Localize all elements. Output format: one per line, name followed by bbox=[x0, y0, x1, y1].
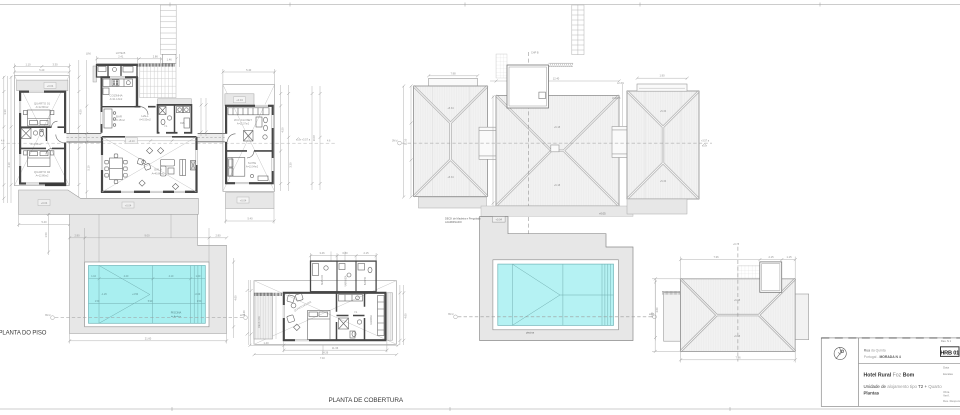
svg-text:11.36: 11.36 bbox=[332, 346, 339, 350]
svg-text:3.30: 3.30 bbox=[288, 162, 292, 168]
svg-text:4.10: 4.10 bbox=[7, 162, 11, 168]
svg-text:7.98: 7.98 bbox=[450, 71, 456, 75]
svg-text:3M d: 3M d bbox=[392, 140, 398, 143]
svg-text:4.49: 4.49 bbox=[242, 310, 246, 316]
svg-text:Hotel Rural Foz Bom: Hotel Rural Foz Bom bbox=[864, 372, 915, 378]
svg-text:+3.57 a: +3.57 a bbox=[302, 138, 311, 142]
svg-text:21.60: 21.60 bbox=[145, 336, 152, 340]
svg-text:1.50: 1.50 bbox=[44, 232, 48, 238]
svg-text:DECK de Madeira e Pergolado: DECK de Madeira e Pergolado bbox=[445, 217, 481, 221]
svg-text:3M d: 3M d bbox=[448, 313, 454, 316]
svg-text:1.10: 1.10 bbox=[25, 62, 31, 66]
svg-text:Des. N 1: Des. N 1 bbox=[941, 339, 952, 343]
svg-text:I.S.: I.S. bbox=[164, 126, 168, 128]
svg-text:+5.34: +5.34 bbox=[447, 176, 454, 179]
svg-text:3.30: 3.30 bbox=[3, 109, 7, 115]
svg-text:1.00: 1.00 bbox=[196, 275, 201, 278]
svg-text:11.10: 11.10 bbox=[403, 138, 407, 145]
svg-text:+0.05: +0.05 bbox=[599, 211, 606, 215]
svg-text:2.15: 2.15 bbox=[768, 255, 774, 259]
svg-text:Rua da Quinta: Rua da Quinta bbox=[864, 349, 886, 353]
svg-text:d=111.3: d=111.3 bbox=[612, 97, 621, 100]
svg-text:12.40: 12.40 bbox=[553, 76, 560, 80]
svg-text:Unidade de alojamento tipo T2: Unidade de alojamento tipo T2 + Quarto bbox=[864, 384, 943, 389]
svg-text:A=12.07m2: A=12.07m2 bbox=[237, 123, 250, 126]
svg-text:SALA: SALA bbox=[154, 168, 163, 172]
svg-text:1.90: 1.90 bbox=[659, 74, 665, 78]
svg-text:10.67: 10.67 bbox=[312, 134, 316, 141]
svg-text:A=11.13m2: A=11.13m2 bbox=[110, 98, 123, 101]
svg-text:A=40.86m2: A=40.86m2 bbox=[152, 172, 165, 175]
svg-text:Des. Responsavel: Des. Responsavel bbox=[943, 399, 960, 403]
svg-text:4.60: 4.60 bbox=[655, 307, 659, 313]
svg-text:A=4.43m2: A=4.43m2 bbox=[31, 143, 43, 146]
svg-text:A=12.86m2: A=12.86m2 bbox=[36, 175, 49, 178]
svg-text:-0.60: -0.60 bbox=[195, 293, 201, 296]
svg-text:QUARTO 02: QUARTO 02 bbox=[34, 170, 51, 174]
svg-text:2.15: 2.15 bbox=[363, 251, 369, 255]
svg-text:+0.04: +0.04 bbox=[41, 201, 48, 205]
svg-text:BAR: BAR bbox=[116, 115, 122, 119]
svg-text:1.15: 1.15 bbox=[786, 255, 792, 259]
svg-text:3.30: 3.30 bbox=[52, 62, 58, 66]
svg-text:A=5.50m2: A=5.50m2 bbox=[139, 119, 151, 122]
svg-text:+5.34: +5.34 bbox=[660, 110, 667, 113]
svg-text:4.60: 4.60 bbox=[650, 312, 654, 318]
svg-text:+5.34: +5.34 bbox=[447, 107, 454, 110]
svg-text:7.36: 7.36 bbox=[713, 255, 719, 259]
svg-text:Data: Data bbox=[943, 366, 949, 370]
svg-text:+6.78: +6.78 bbox=[733, 243, 740, 246]
svg-text:LIM.: LIM. bbox=[86, 52, 91, 56]
svg-text:9.00: 9.00 bbox=[144, 233, 150, 237]
svg-text:A=6.15m2: A=6.15m2 bbox=[113, 119, 125, 122]
svg-text:5.40: 5.40 bbox=[41, 220, 47, 224]
svg-text:+0.04: +0.04 bbox=[236, 98, 243, 102]
svg-text:3.46: 3.46 bbox=[319, 251, 325, 255]
svg-text:I.S.: I.S. bbox=[354, 312, 358, 314]
svg-text:4.60: 4.60 bbox=[404, 313, 408, 319]
svg-text:5.40: 5.40 bbox=[39, 68, 45, 72]
svg-text:+4.50: +4.50 bbox=[132, 293, 139, 296]
svg-text:PLANTA DE COBERTURA: PLANTA DE COBERTURA bbox=[329, 397, 404, 404]
svg-text:0.80: 0.80 bbox=[342, 251, 348, 255]
svg-text:CHP B: CHP B bbox=[531, 52, 539, 55]
svg-text:VARANDA: VARANDA bbox=[345, 275, 348, 286]
svg-text:+0.10: +0.10 bbox=[128, 140, 135, 143]
svg-text:2.80: 2.80 bbox=[215, 233, 221, 237]
svg-text:5.40: 5.40 bbox=[246, 68, 252, 72]
svg-text:2.80: 2.80 bbox=[74, 233, 80, 237]
svg-text:1.10: 1.10 bbox=[91, 275, 96, 278]
svg-text:piscina: piscina bbox=[526, 331, 535, 335]
svg-text:COZINHA: COZINHA bbox=[109, 94, 122, 98]
svg-text:SUITE: SUITE bbox=[248, 161, 256, 165]
svg-text:DML: DML bbox=[180, 123, 186, 125]
svg-text:BANHO: BANHO bbox=[364, 277, 367, 285]
svg-text:1.46: 1.46 bbox=[167, 58, 173, 62]
svg-text:AJARDINADO: AJARDINADO bbox=[445, 220, 462, 224]
svg-text:Plantas: Plantas bbox=[864, 391, 880, 396]
svg-text:HRB 01: HRB 01 bbox=[940, 351, 959, 357]
svg-text:Verif.: Verif. bbox=[943, 394, 950, 398]
svg-text:4.10: 4.10 bbox=[169, 275, 174, 278]
svg-text:+5.34: +5.34 bbox=[660, 180, 667, 183]
svg-text:1.50: 1.50 bbox=[95, 301, 100, 303]
svg-text:LOTE B: LOTE B bbox=[116, 51, 126, 55]
svg-text:4.60: 4.60 bbox=[233, 295, 237, 301]
svg-text:4.6: 4.6 bbox=[327, 140, 331, 143]
svg-text:DECK 4.49: DECK 4.49 bbox=[259, 316, 261, 328]
svg-text:Portugal - MORADA N 4: Portugal - MORADA N 4 bbox=[864, 355, 901, 359]
svg-text:4.50: 4.50 bbox=[78, 109, 82, 115]
svg-text:1.50: 1.50 bbox=[197, 301, 202, 303]
svg-text:7.40: 7.40 bbox=[320, 357, 325, 360]
svg-text:+6.18: +6.18 bbox=[734, 299, 741, 302]
svg-text:-1.26: -1.26 bbox=[101, 293, 107, 296]
svg-text:W.C./CLOSET: W.C./CLOSET bbox=[234, 118, 252, 122]
svg-text:+3.57 a: +3.57 a bbox=[701, 140, 710, 143]
svg-text:+0.04: +0.04 bbox=[47, 84, 54, 88]
svg-text:PISCINA: PISCINA bbox=[171, 311, 182, 315]
svg-text:GUARDA: GUARDA bbox=[370, 315, 373, 325]
svg-text:4.20: 4.20 bbox=[124, 275, 129, 278]
svg-text:QUARTO 01: QUARTO 01 bbox=[34, 102, 51, 106]
svg-text:+6.18: +6.18 bbox=[554, 184, 561, 187]
svg-text:+2.4%: +2.4% bbox=[617, 82, 625, 85]
svg-text:4.6: 4.6 bbox=[1, 140, 5, 143]
svg-text:A=12.86m2: A=12.86m2 bbox=[36, 106, 49, 109]
svg-text:HALL: HALL bbox=[141, 114, 149, 118]
svg-text:+6.18: +6.18 bbox=[734, 335, 741, 338]
svg-text:4.50: 4.50 bbox=[280, 127, 284, 133]
svg-text:Escalas: Escalas bbox=[943, 372, 953, 376]
svg-text:1.40: 1.40 bbox=[263, 341, 269, 345]
svg-text:2.86: 2.86 bbox=[153, 54, 159, 58]
svg-text:+0.04: +0.04 bbox=[496, 219, 503, 222]
svg-text:5.10: 5.10 bbox=[86, 165, 90, 171]
svg-text:A=13.04m2: A=13.04m2 bbox=[246, 166, 259, 169]
svg-text:3M d: 3M d bbox=[45, 314, 51, 317]
svg-text:5.90: 5.90 bbox=[148, 301, 153, 303]
svg-text:+0.04: +0.04 bbox=[240, 198, 247, 202]
svg-text:5.40: 5.40 bbox=[247, 217, 253, 221]
svg-text:7.86: 7.86 bbox=[735, 355, 741, 359]
svg-text:+6.18: +6.18 bbox=[554, 126, 561, 129]
svg-text:+0.04: +0.04 bbox=[125, 203, 132, 207]
svg-text:PLANTA DO PISO: PLANTA DO PISO bbox=[0, 331, 47, 337]
svg-text:SERVICO: SERVICO bbox=[322, 275, 324, 286]
